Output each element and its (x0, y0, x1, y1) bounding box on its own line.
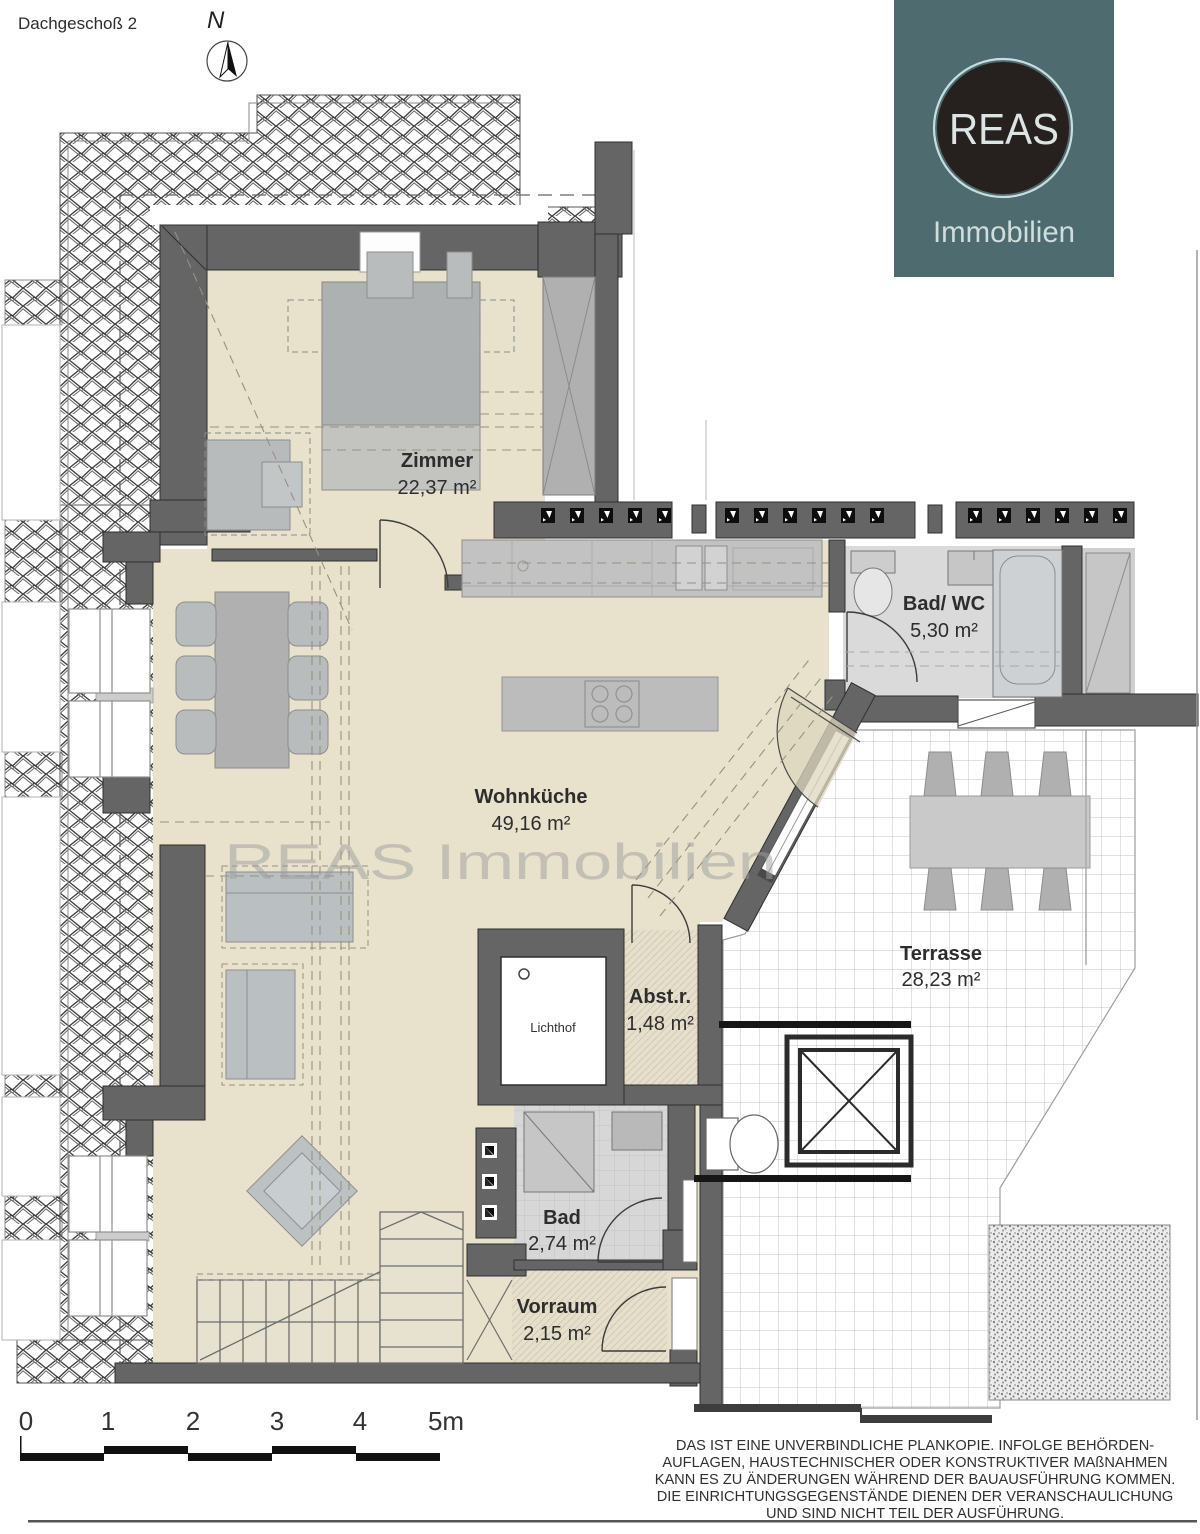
svg-text:2: 2 (186, 1406, 200, 1436)
svg-text:0: 0 (19, 1406, 33, 1436)
svg-text:DAS IST EINE UNVERBINDLICHE PL: DAS IST EINE UNVERBINDLICHE PLANKOPIE. I… (676, 1436, 1154, 1454)
svg-text:DIE EINRICHTUNGSGEGENSTÄNDE DI: DIE EINRICHTUNGSGEGENSTÄNDE DIENEN DER V… (657, 1488, 1174, 1505)
svg-text:1,48 m²: 1,48 m² (626, 1013, 694, 1035)
svg-text:4: 4 (353, 1406, 367, 1436)
svg-text:2,74 m²: 2,74 m² (528, 1233, 596, 1255)
svg-text:Immobilien: Immobilien (933, 216, 1075, 249)
svg-text:REAS: REAS (949, 105, 1059, 154)
svg-text:AUFLAGEN, HAUSTECHNISCHER ODER: AUFLAGEN, HAUSTECHNISCHER ODER KONSTRUKT… (662, 1455, 1167, 1471)
svg-text:5,30 m²: 5,30 m² (910, 620, 978, 642)
svg-text:Bad: Bad (543, 1207, 581, 1229)
svg-text:UND SIND NICHT TEIL DER AUSFÜH: UND SIND NICHT TEIL DER AUSFÜHRUNG. (766, 1504, 1064, 1522)
svg-text:Vorraum: Vorraum (517, 1296, 598, 1318)
svg-text:Lichthof: Lichthof (530, 1020, 576, 1035)
svg-text:3: 3 (270, 1406, 284, 1436)
svg-text:N: N (207, 7, 225, 34)
svg-text:49,16 m²: 49,16 m² (492, 813, 571, 835)
svg-text:Wohnküche: Wohnküche (475, 786, 588, 808)
svg-text:28,23 m²: 28,23 m² (902, 969, 981, 991)
svg-text:Dachgeschoß 2: Dachgeschoß 2 (18, 14, 137, 33)
svg-text:KANN ES ZU ÄNDERUNGEN WÄHREND: KANN ES ZU ÄNDERUNGEN WÄHREND DER BAUAUS… (655, 1470, 1176, 1488)
svg-text:22,37 m²: 22,37 m² (398, 477, 477, 499)
svg-text:Abst.r.: Abst.r. (629, 986, 691, 1008)
svg-text:1: 1 (101, 1406, 115, 1436)
svg-text:Zimmer: Zimmer (401, 450, 473, 472)
svg-text:5m: 5m (428, 1406, 464, 1436)
svg-text:2,15 m²: 2,15 m² (523, 1323, 591, 1345)
svg-text:REAS Immobilien: REAS Immobilien (224, 834, 777, 890)
svg-text:Bad/ WC: Bad/ WC (903, 593, 985, 615)
svg-text:Terrasse: Terrasse (900, 943, 982, 965)
